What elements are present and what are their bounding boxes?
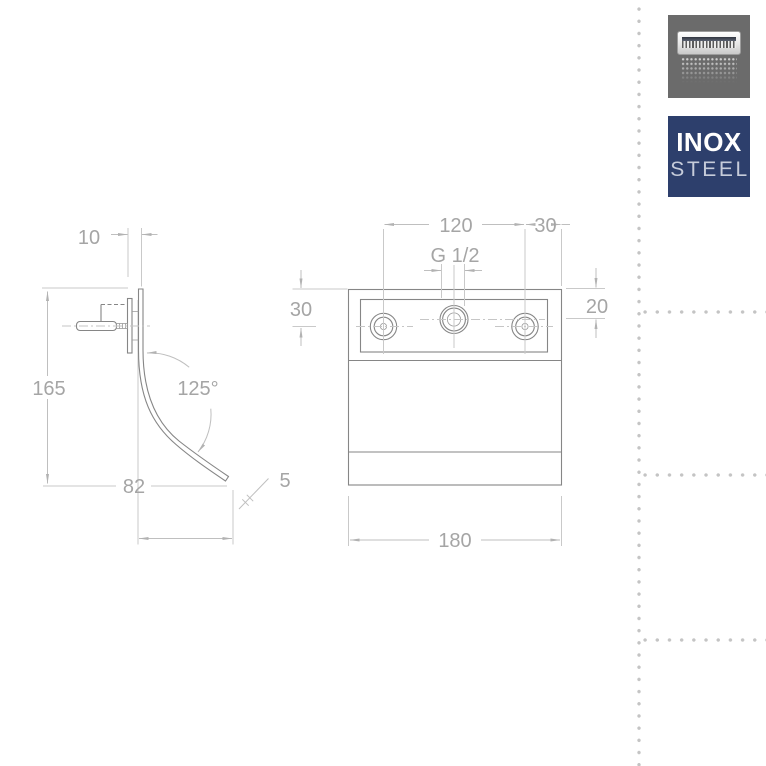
horizontal-dotted-guide-3: [639, 637, 766, 643]
dim-side-angle: 125°: [177, 378, 218, 400]
dim-front-thread: G 1/2: [431, 245, 480, 267]
inox-steel-badge: INOX STEEL: [668, 116, 750, 197]
horizontal-dotted-guide-2: [639, 472, 766, 478]
waterfall-shower-head-icon: [677, 31, 741, 55]
front-view: [349, 290, 562, 486]
technical-drawing: 10 165 82 125° 5: [0, 0, 620, 766]
dim-side-reach: 82: [123, 476, 145, 498]
dim-side-thickness: 5: [279, 470, 290, 492]
page: 10 165 82 125° 5: [0, 0, 766, 766]
dim-front-top-to-holes: 30: [290, 299, 312, 321]
dim-front-edge-offset: 30: [534, 215, 556, 237]
dim-front-top-to-center: 20: [586, 296, 608, 318]
side-view-dimensions: 10 165 82 125° 5: [32, 227, 290, 545]
waterfall-shower-badge: [668, 15, 750, 98]
side-view: [62, 289, 229, 545]
dim-front-width: 180: [438, 530, 471, 552]
front-view-dimensions: 120 30 G 1/2 30 20 180: [290, 215, 608, 552]
steel-label: STEEL: [670, 159, 750, 181]
dim-side-offset: 10: [78, 227, 100, 249]
vertical-dotted-guide: [636, 0, 642, 766]
shower-nozzles-icon: [682, 41, 736, 48]
horizontal-dotted-guide-1: [639, 309, 766, 315]
dim-front-hole-spacing: 120: [439, 215, 472, 237]
inox-label: INOX: [668, 129, 750, 155]
dim-side-height: 165: [32, 378, 65, 400]
